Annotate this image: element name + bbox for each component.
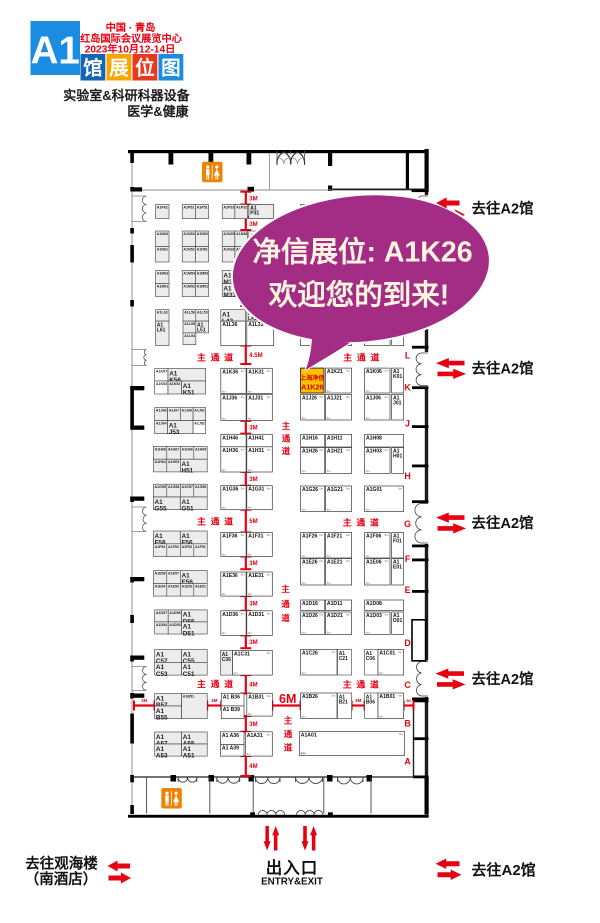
svg-text:4M: 4M <box>249 764 257 770</box>
svg-text:A1G01: A1G01 <box>366 487 382 493</box>
svg-text:4.5M: 4.5M <box>249 353 262 359</box>
svg-text:H: H <box>404 471 410 481</box>
svg-text:G: G <box>404 519 411 529</box>
svg-text:6m: 6m <box>267 651 272 655</box>
svg-text:A1G57: A1G57 <box>182 485 193 489</box>
svg-text:3M: 3M <box>406 699 411 703</box>
svg-text:A1L54: A1L54 <box>184 334 195 338</box>
svg-text:6m: 6m <box>267 447 272 451</box>
svg-text:A1N32: A1N32 <box>223 248 234 252</box>
svg-text:馆: 馆 <box>83 57 103 80</box>
svg-text:A1K53: A1K53 <box>156 382 167 386</box>
svg-text:6m: 6m <box>327 389 332 393</box>
svg-text:通: 通 <box>281 599 290 609</box>
svg-text:主: 主 <box>282 421 291 431</box>
svg-text:图: 图 <box>161 58 181 80</box>
svg-text:6m: 6m <box>366 389 371 393</box>
svg-text:去往A2馆: 去往A2馆 <box>472 670 534 688</box>
svg-text:C51: C51 <box>183 671 195 678</box>
svg-text:A1D11: A1D11 <box>327 601 343 607</box>
svg-text:A1L53: A1L53 <box>197 311 208 315</box>
svg-text:去往A2馆: 去往A2馆 <box>472 200 534 218</box>
svg-text:A1D57: A1D57 <box>156 611 167 615</box>
svg-text:A1K57: A1K57 <box>156 370 167 374</box>
svg-text:A1G59: A1G59 <box>155 485 166 489</box>
svg-text:A1C01: A1C01 <box>379 651 395 657</box>
svg-text:A1J36: A1J36 <box>222 396 237 402</box>
svg-text:3M: 3M <box>249 222 257 228</box>
svg-text:B: B <box>404 719 410 729</box>
svg-text:A1E21: A1E21 <box>327 560 343 566</box>
svg-text:6m: 6m <box>241 533 246 537</box>
svg-text:6m: 6m <box>398 650 403 654</box>
svg-text:A1M63: A1M63 <box>157 272 169 276</box>
svg-text:6m: 6m <box>302 630 307 634</box>
svg-text:3M: 3M <box>249 561 257 567</box>
svg-text:6m: 6m <box>248 416 253 420</box>
svg-text:A1K21: A1K21 <box>327 369 343 375</box>
svg-text:A1G31: A1G31 <box>248 487 264 493</box>
svg-text:6m: 6m <box>267 486 272 490</box>
svg-text:A1H31: A1H31 <box>248 448 264 454</box>
svg-text:6m: 6m <box>241 395 246 399</box>
svg-text:通: 通 <box>284 729 293 739</box>
svg-text:A1A31: A1A31 <box>247 733 263 739</box>
svg-text:A1E52: A1E52 <box>182 584 193 588</box>
svg-text:A1D36: A1D36 <box>222 612 238 618</box>
svg-text:6m: 6m <box>366 469 371 473</box>
svg-text:A1N38: A1N38 <box>236 232 247 236</box>
svg-text:6m: 6m <box>267 611 272 615</box>
svg-text:C53: C53 <box>156 671 168 678</box>
svg-text:A1G36: A1G36 <box>222 487 238 493</box>
svg-text:D51: D51 <box>183 630 195 637</box>
svg-text:6m: 6m <box>385 533 390 537</box>
svg-text:3M: 3M <box>141 698 147 703</box>
svg-text:A1K52: A1K52 <box>169 382 180 386</box>
svg-text:A1H41: A1H41 <box>248 435 264 441</box>
svg-text:A1 B36: A1 B36 <box>223 694 240 700</box>
svg-text:6m: 6m <box>319 395 324 399</box>
svg-text:A1C31: A1C31 <box>234 651 250 657</box>
svg-text:6m: 6m <box>366 554 371 558</box>
svg-text:A1D26: A1D26 <box>302 613 318 619</box>
svg-text:6m: 6m <box>222 631 227 635</box>
svg-text:A1P51: A1P51 <box>197 206 208 210</box>
svg-text:通: 通 <box>282 434 291 444</box>
svg-text:A1N63: A1N63 <box>157 232 168 236</box>
svg-text:A1B31: A1B31 <box>248 694 264 700</box>
svg-text:A1 B39: A1 B39 <box>223 707 240 713</box>
svg-text:6m: 6m <box>346 448 351 452</box>
svg-text:H51: H51 <box>182 468 194 475</box>
svg-text:P31: P31 <box>250 211 259 217</box>
svg-text:A1N51: A1N51 <box>197 248 208 252</box>
svg-text:去往A2馆: 去往A2馆 <box>472 360 534 378</box>
svg-text:C36: C36 <box>222 657 231 663</box>
svg-text:B55: B55 <box>156 714 168 721</box>
svg-text:6M: 6M <box>279 692 296 706</box>
svg-text:6m: 6m <box>327 416 332 420</box>
svg-text:A1D16: A1D16 <box>302 601 318 607</box>
svg-text:6m: 6m <box>346 533 351 537</box>
svg-text:A1N61: A1N61 <box>157 248 168 252</box>
svg-text:6m: 6m <box>398 694 403 698</box>
svg-text:A1E54: A1E54 <box>155 584 166 588</box>
svg-text:6m: 6m <box>302 671 307 675</box>
svg-text:J53: J53 <box>169 429 180 436</box>
svg-text:A1E58: A1E58 <box>155 572 166 576</box>
svg-text:6m: 6m <box>319 533 324 537</box>
svg-text:A1D03: A1D03 <box>366 613 382 619</box>
svg-text:A1 A39: A1 A39 <box>222 746 239 752</box>
svg-text:L: L <box>405 351 411 361</box>
svg-text:位: 位 <box>135 57 155 80</box>
svg-text:3M: 3M <box>249 196 257 202</box>
svg-text:主通道: 主通道 <box>197 352 238 363</box>
svg-text:3M: 3M <box>249 477 257 483</box>
svg-text:C21: C21 <box>339 656 348 662</box>
svg-text:6m: 6m <box>241 447 246 451</box>
svg-text:A1: A1 <box>31 30 80 73</box>
svg-text:6m: 6m <box>222 552 227 556</box>
svg-text:6m: 6m <box>248 468 253 472</box>
svg-text:A1K06: A1K06 <box>366 369 382 375</box>
svg-text:A1N53: A1N53 <box>197 232 208 236</box>
svg-text:C: C <box>404 680 411 690</box>
svg-text:出入口: 出入口 <box>266 858 319 878</box>
svg-text:6m: 6m <box>267 694 272 698</box>
svg-text:6m: 6m <box>248 631 253 635</box>
svg-text:A1P62: A1P62 <box>157 206 168 210</box>
svg-text:K: K <box>404 383 411 393</box>
svg-text:A1D08: A1D08 <box>366 601 382 607</box>
svg-text:6m: 6m <box>241 369 246 373</box>
svg-text:A1L36: A1L36 <box>222 322 237 328</box>
svg-text:A1H16: A1H16 <box>302 435 318 441</box>
svg-text:A1H63: A1H63 <box>168 460 179 464</box>
svg-text:B21: B21 <box>339 700 348 706</box>
svg-text:G51: G51 <box>182 505 195 512</box>
svg-text:A1D53: A1D53 <box>169 623 180 627</box>
svg-text:6m: 6m <box>385 448 390 452</box>
svg-text:A1H03: A1H03 <box>366 449 382 455</box>
svg-text:K51: K51 <box>183 389 195 396</box>
svg-text:6m: 6m <box>327 581 332 585</box>
svg-text:6m: 6m <box>267 732 272 736</box>
svg-text:A1H26: A1H26 <box>302 449 318 455</box>
svg-text:A1F31: A1F31 <box>248 533 263 539</box>
svg-text:A1K26: A1K26 <box>301 382 323 391</box>
svg-text:A1F51: A1F51 <box>195 545 206 549</box>
svg-text:6m: 6m <box>248 506 253 510</box>
svg-text:K01: K01 <box>393 374 403 380</box>
svg-text:A1H68: A1H68 <box>155 447 166 451</box>
svg-text:A1K36: A1K36 <box>222 369 238 375</box>
svg-text:E01: E01 <box>393 565 402 571</box>
svg-text:A1F21: A1F21 <box>327 534 342 540</box>
svg-text:A1P52: A1P52 <box>183 206 194 210</box>
svg-text:6m: 6m <box>222 468 227 472</box>
svg-text:6m: 6m <box>222 506 227 510</box>
svg-text:A1H46: A1H46 <box>222 435 238 441</box>
svg-text:红岛国际会议展览中心: 红岛国际会议展览中心 <box>80 32 183 45</box>
svg-text:6m: 6m <box>399 732 404 736</box>
svg-text:A1G26: A1G26 <box>302 487 318 493</box>
svg-text:C06: C06 <box>366 656 375 662</box>
svg-text:6m: 6m <box>302 554 307 558</box>
svg-text:主通道: 主通道 <box>197 678 238 689</box>
svg-text:A1D21: A1D21 <box>327 613 343 619</box>
svg-text:24m: 24m <box>301 751 307 755</box>
svg-text:A1M52: A1M52 <box>183 285 195 289</box>
svg-text:6m: 6m <box>234 671 239 675</box>
svg-text:主通道: 主通道 <box>343 679 384 690</box>
svg-text:6m: 6m <box>241 573 246 577</box>
svg-text:6m: 6m <box>327 507 332 511</box>
svg-text:6m: 6m <box>319 487 324 491</box>
svg-text:A1A01: A1A01 <box>301 733 317 739</box>
svg-text:A1F36: A1F36 <box>222 533 237 539</box>
svg-text:A1F53: A1F53 <box>168 545 179 549</box>
svg-text:6m: 6m <box>327 469 332 473</box>
svg-text:A1J21: A1J21 <box>327 396 342 402</box>
svg-text:A1M53: A1M53 <box>197 272 209 276</box>
svg-text:6m: 6m <box>222 389 227 393</box>
svg-text:6m: 6m <box>222 416 227 420</box>
svg-text:6m: 6m <box>267 369 272 373</box>
svg-text:A1E36: A1E36 <box>222 573 238 579</box>
svg-text:6m: 6m <box>385 395 390 399</box>
svg-text:6m: 6m <box>222 592 227 596</box>
svg-text:A1K31: A1K31 <box>248 369 264 375</box>
svg-text:A1N52: A1N52 <box>183 248 194 252</box>
svg-text:A1N54: A1N54 <box>183 232 194 236</box>
svg-text:6m: 6m <box>346 613 351 617</box>
svg-text:3M: 3M <box>249 640 257 646</box>
svg-text:A1M61: A1M61 <box>157 285 169 289</box>
svg-text:A1 A36: A1 A36 <box>222 733 239 739</box>
svg-text:A1F26: A1F26 <box>302 534 317 540</box>
svg-text:6m: 6m <box>366 416 371 420</box>
svg-text:6m: 6m <box>267 533 272 537</box>
svg-text:6m: 6m <box>302 469 307 473</box>
svg-text:A1J52: A1J52 <box>194 422 205 426</box>
svg-text:6m: 6m <box>302 581 307 585</box>
svg-text:A1H66: A1H66 <box>182 447 193 451</box>
svg-text:6m: 6m <box>366 581 371 585</box>
svg-text:A1B51: A1B51 <box>183 695 194 699</box>
svg-text:F01: F01 <box>393 539 402 545</box>
svg-text:A1G56: A1G56 <box>195 485 206 489</box>
svg-text:6m: 6m <box>385 369 390 373</box>
svg-text:6m: 6m <box>385 613 390 617</box>
svg-text:3M: 3M <box>211 698 218 703</box>
svg-text:6m: 6m <box>267 573 272 577</box>
svg-text:A1J67: A1J67 <box>169 409 180 413</box>
svg-text:H01: H01 <box>393 454 403 460</box>
svg-text:A1E06: A1E06 <box>366 560 382 566</box>
svg-text:6m: 6m <box>379 671 384 675</box>
svg-text:E: E <box>405 585 411 595</box>
svg-text:主通道: 主通道 <box>343 517 384 528</box>
svg-text:A1M51: A1M51 <box>197 285 209 289</box>
svg-text:6m: 6m <box>319 559 324 563</box>
svg-text:A1D56: A1D56 <box>169 611 180 615</box>
svg-text:A1E31: A1E31 <box>248 573 264 579</box>
svg-text:A1L56: A1L56 <box>184 311 195 315</box>
svg-text:6m: 6m <box>327 554 332 558</box>
svg-text:A1H08: A1H08 <box>366 435 382 441</box>
svg-text:道: 道 <box>284 743 293 753</box>
svg-text:6m: 6m <box>366 507 371 511</box>
svg-text:6m: 6m <box>248 712 253 716</box>
svg-text:6m: 6m <box>247 752 252 756</box>
svg-text:6m: 6m <box>346 395 351 399</box>
svg-text:B06: B06 <box>366 700 375 706</box>
svg-text:医学&健康: 医学&健康 <box>127 104 189 119</box>
svg-text:主通道: 主通道 <box>197 516 238 527</box>
svg-text:6m: 6m <box>327 630 332 634</box>
svg-text:A1D31: A1D31 <box>248 612 264 618</box>
svg-text:2023年10月12-14日: 2023年10月12-14日 <box>85 43 176 56</box>
svg-text:A1G58: A1G58 <box>168 485 179 489</box>
svg-text:A1B26: A1B26 <box>302 694 318 700</box>
svg-text:D: D <box>404 638 410 648</box>
svg-text:A53: A53 <box>156 752 168 759</box>
svg-text:3M: 3M <box>249 602 257 608</box>
svg-text:主: 主 <box>281 584 290 594</box>
svg-text:6m: 6m <box>302 507 307 511</box>
svg-text:中国 · 青岛: 中国 · 青岛 <box>106 21 156 34</box>
svg-text:J: J <box>405 419 410 429</box>
svg-text:A1H11: A1H11 <box>327 435 343 441</box>
svg-text:6m: 6m <box>319 613 324 617</box>
svg-text:道: 道 <box>282 446 291 456</box>
svg-text:L61: L61 <box>157 328 166 334</box>
svg-text:6m: 6m <box>319 448 324 452</box>
svg-text:净信展位: A1K26: 净信展位: A1K26 <box>252 236 472 269</box>
svg-text:A1J06: A1J06 <box>366 396 381 402</box>
svg-text:6m: 6m <box>302 714 307 718</box>
svg-text:3M: 3M <box>355 698 362 703</box>
svg-text:G55: G55 <box>155 505 168 512</box>
svg-text:A1E57: A1E57 <box>168 572 179 576</box>
svg-text:欢迎您的到来!: 欢迎您的到来! <box>268 279 450 312</box>
svg-text:6m: 6m <box>248 592 253 596</box>
svg-text:6m: 6m <box>267 395 272 399</box>
svg-text:展: 展 <box>109 58 129 80</box>
svg-text:A1C26: A1C26 <box>302 651 318 657</box>
svg-text:6m: 6m <box>248 552 253 556</box>
svg-text:A1F06: A1F06 <box>366 534 381 540</box>
svg-text:A1J26: A1J26 <box>302 396 317 402</box>
svg-text:J01: J01 <box>393 401 402 407</box>
svg-text:A1H67: A1H67 <box>168 447 179 451</box>
svg-text:6m: 6m <box>385 559 390 563</box>
svg-text:6m: 6m <box>398 487 403 491</box>
svg-text:A1J64: A1J64 <box>156 422 167 426</box>
svg-text:A1H64: A1H64 <box>155 460 166 464</box>
svg-text:A1P33: A1P33 <box>223 206 234 210</box>
svg-text:3M: 3M <box>249 425 257 431</box>
svg-text:A1E26: A1E26 <box>302 560 318 566</box>
svg-text:A1J66: A1J66 <box>182 409 193 413</box>
svg-text:6m: 6m <box>366 630 371 634</box>
svg-text:A1E51: A1E51 <box>195 584 206 588</box>
svg-text:实验室&科研科器设备: 实验室&科研科器设备 <box>63 88 190 103</box>
svg-text:去往观海楼: 去往观海楼 <box>25 855 98 873</box>
svg-text:去往A2馆: 去往A2馆 <box>472 514 534 532</box>
svg-text:6m: 6m <box>241 486 246 490</box>
svg-text:A1J31: A1J31 <box>248 396 263 402</box>
svg-text:5M: 5M <box>249 519 257 525</box>
svg-text:6m: 6m <box>332 650 337 654</box>
svg-text:A1F52: A1F52 <box>182 545 193 549</box>
svg-text:F: F <box>405 554 411 564</box>
svg-text:A1L63: A1L63 <box>157 311 168 315</box>
svg-text:（南酒店）: （南酒店） <box>25 870 98 888</box>
svg-text:A1M54: A1M54 <box>183 272 195 276</box>
svg-text:4M: 4M <box>249 683 257 689</box>
svg-text:6m: 6m <box>346 559 351 563</box>
svg-text:A1L55: A1L55 <box>184 322 195 326</box>
svg-text:主通道: 主通道 <box>343 352 384 363</box>
svg-text:A1B01: A1B01 <box>379 694 395 700</box>
svg-text:A1H36: A1H36 <box>222 448 238 454</box>
svg-text:主: 主 <box>284 716 293 726</box>
svg-text:A1H65: A1H65 <box>195 447 206 451</box>
svg-text:6m: 6m <box>241 611 246 615</box>
svg-text:L51: L51 <box>197 328 206 334</box>
svg-text:D01: D01 <box>393 618 403 624</box>
svg-text:A1H21: A1H21 <box>327 449 343 455</box>
svg-text:6m: 6m <box>346 487 351 491</box>
svg-text:A: A <box>404 757 411 767</box>
svg-text:6m: 6m <box>379 714 384 718</box>
svg-text:ENTRY&EXIT: ENTRY&EXIT <box>261 877 323 888</box>
svg-text:A1F54: A1F54 <box>155 545 166 549</box>
svg-text:A1P32: A1P32 <box>236 206 247 210</box>
svg-text:A1G21: A1G21 <box>327 487 343 493</box>
svg-text:6m: 6m <box>248 389 253 393</box>
svg-text:6m: 6m <box>302 416 307 420</box>
svg-text:道: 道 <box>281 613 290 623</box>
svg-text:A1D54: A1D54 <box>156 623 167 627</box>
svg-text:A1J68: A1J68 <box>156 409 167 413</box>
svg-text:A1N39: A1N39 <box>223 232 234 236</box>
svg-text:去往A2馆: 去往A2馆 <box>472 861 536 879</box>
svg-text:6m: 6m <box>346 369 351 373</box>
svg-text:6m: 6m <box>332 694 337 698</box>
svg-text:A1J61: A1J61 <box>194 409 205 413</box>
svg-text:A51: A51 <box>183 752 195 759</box>
svg-text:上海净信: 上海净信 <box>300 374 325 382</box>
svg-text:A1E53: A1E53 <box>168 584 179 588</box>
svg-text:3M: 3M <box>249 722 257 728</box>
